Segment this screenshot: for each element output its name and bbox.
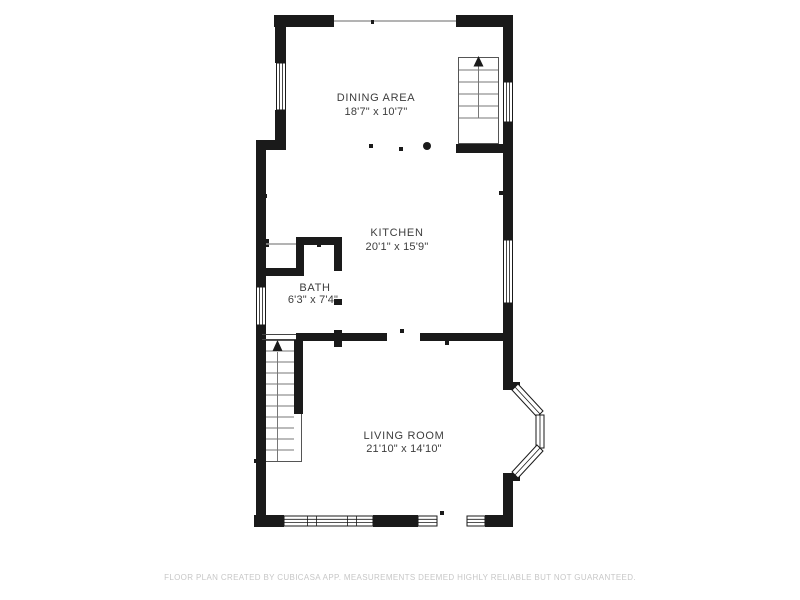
tick-kitchen-divider-right xyxy=(445,341,449,345)
window-living-bottom-mid xyxy=(418,516,437,526)
living-room-dimensions: 21'10" x 14'10" xyxy=(366,443,442,455)
disclaimer-text: FLOOR PLAN CREATED BY CUBICASA APP. MEAS… xyxy=(164,573,636,582)
window-living-bottom-right xyxy=(467,516,485,526)
page-background xyxy=(0,0,800,600)
bath-label: BATH xyxy=(299,282,330,294)
kitchen-dimensions: 20'1" x 15'9" xyxy=(366,241,429,253)
wall-bottom-left-corner xyxy=(254,515,284,527)
wall-right-upper xyxy=(503,15,513,82)
window-dining-left xyxy=(277,63,286,110)
wall-bath-door-stub xyxy=(256,239,269,247)
wall-bath-west-bar xyxy=(262,268,304,276)
tick-bottom-opening xyxy=(440,511,444,515)
wall-lower-stair-right xyxy=(294,340,303,414)
column-marker-dot xyxy=(423,142,431,150)
tick-right-wall xyxy=(499,191,503,195)
wall-right-kitchen-upper xyxy=(503,122,513,240)
floor-plan-canvas: DINING AREA 18'7" x 10'7" KITCHEN 20'1" … xyxy=(0,0,800,600)
wall-right-kitchen-lower xyxy=(503,303,513,390)
tick-dining-2 xyxy=(399,147,403,151)
tick-top-opening xyxy=(371,20,374,24)
window-kitchen-right xyxy=(504,240,513,303)
wall-right-living xyxy=(503,479,513,527)
wall-bath-bottom xyxy=(296,333,342,341)
wall-left-kitchen xyxy=(256,148,266,287)
wall-left-living xyxy=(256,325,266,527)
wall-bath-right-upper xyxy=(334,237,342,271)
tick-bath-top xyxy=(317,244,321,247)
window-bath-left xyxy=(257,287,266,325)
kitchen-label: KITCHEN xyxy=(370,227,423,239)
wall-bottom-middle xyxy=(373,515,418,527)
bath-dimensions: 6'3" x 7'4" xyxy=(288,294,338,306)
window-living-bottom-left-group xyxy=(284,516,373,526)
wall-divider-kitchen-living-right xyxy=(420,333,504,341)
wall-divider-dining-kitchen xyxy=(456,144,513,153)
tick-dining-1 xyxy=(369,144,373,148)
dining-area-label: DINING AREA xyxy=(337,92,416,104)
upper-staircase xyxy=(459,56,499,144)
wall-left-dining-upper xyxy=(275,15,286,63)
tick-stair-bottom xyxy=(254,459,257,463)
dining-area-dimensions: 18'7" x 10'7" xyxy=(345,106,408,118)
living-room-label: LIVING ROOM xyxy=(363,430,444,442)
tick-left-wall xyxy=(264,194,267,198)
tick-kitchen-divider-left xyxy=(400,329,404,333)
window-dining-right xyxy=(504,82,513,122)
wall-divider-kitchen-living-left xyxy=(340,333,387,341)
